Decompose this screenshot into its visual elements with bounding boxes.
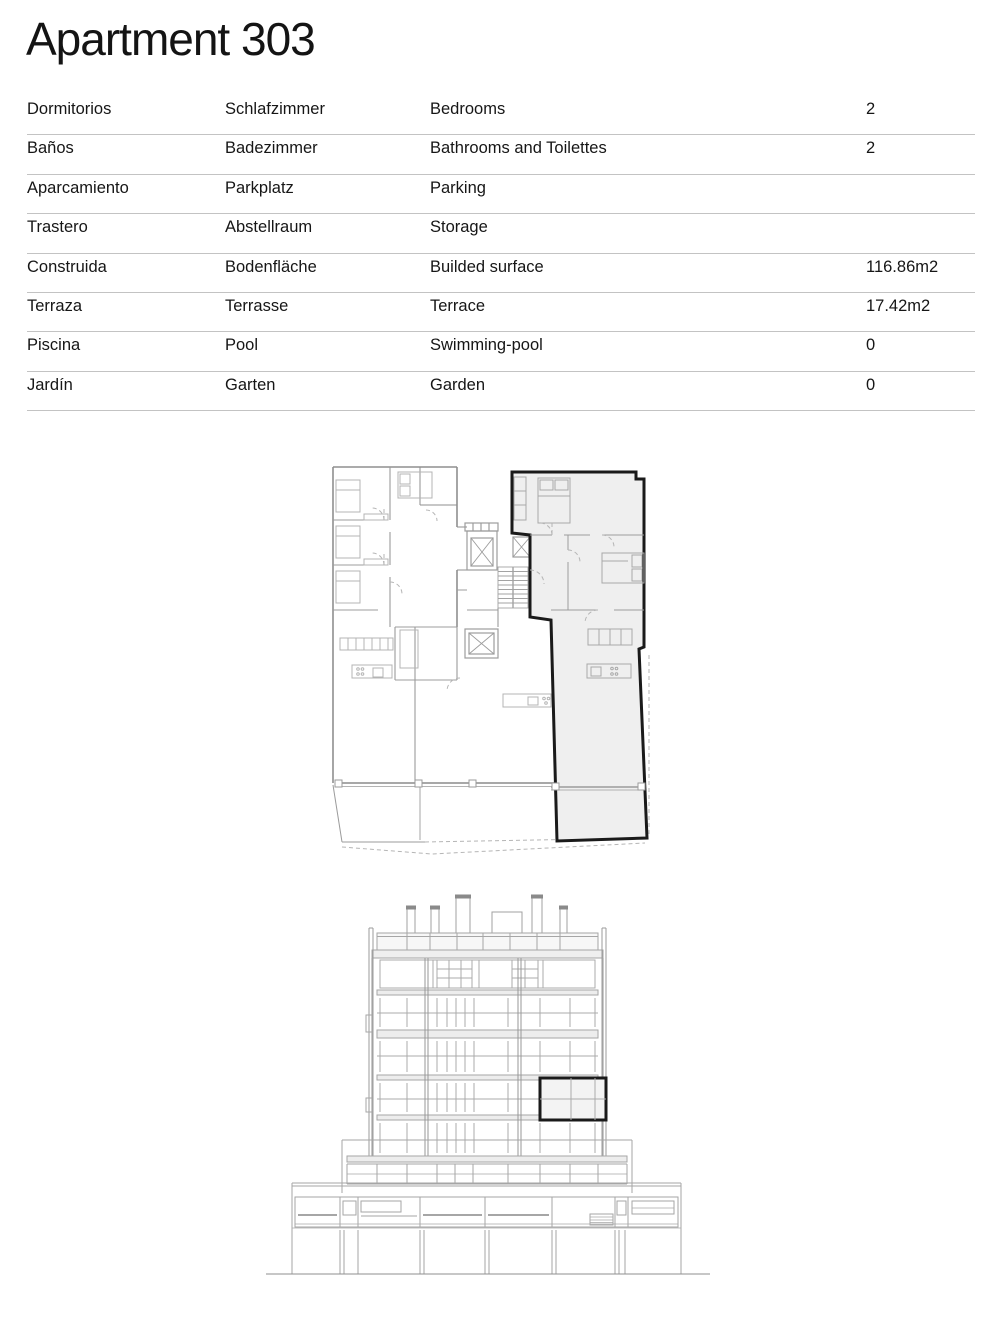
page-title: Apartment 303: [26, 12, 315, 66]
roof-chimneys: [406, 895, 568, 934]
roof-parapet: [372, 933, 603, 958]
highlighted-unit-303: [512, 472, 649, 841]
spec-de: Schlafzimmer: [225, 100, 430, 134]
spec-es: Terraza: [27, 297, 225, 331]
spec-value: [866, 218, 975, 252]
spec-de: Badezimmer: [225, 139, 430, 173]
lower-podium: [292, 1183, 681, 1274]
spec-row-garden: Jardín Garten Garden 0: [27, 372, 975, 411]
spec-en: Builded surface: [430, 258, 866, 292]
stairs: [498, 567, 528, 608]
spec-es: Construida: [27, 258, 225, 292]
spec-row-parking: Aparcamiento Parkplatz Parking: [27, 175, 975, 214]
spec-row-built-surface: Construida Bodenfläche Builded surface 1…: [27, 254, 975, 293]
spec-row-terrace: Terraza Terrasse Terrace 17.42m2: [27, 293, 975, 332]
neighbour-walls: [333, 467, 498, 783]
spec-de: Abstellraum: [225, 218, 430, 252]
spec-de: Pool: [225, 336, 430, 370]
spec-value: 0: [866, 336, 975, 370]
elevation-drawing: [265, 890, 745, 1295]
elevation-svg: [265, 890, 745, 1290]
spec-value: 2: [866, 100, 975, 134]
spec-es: Jardín: [27, 376, 225, 410]
spec-value: 0: [866, 376, 975, 410]
spec-en: Garden: [430, 376, 866, 410]
spec-row-storage: Trastero Abstellraum Storage: [27, 214, 975, 253]
floor-plan-svg: [300, 450, 700, 862]
spec-es: Aparcamiento: [27, 179, 225, 213]
spec-en: Storage: [430, 218, 866, 252]
spec-row-pool: Piscina Pool Swimming-pool 0: [27, 332, 975, 371]
spec-es: Dormitorios: [27, 100, 225, 134]
spec-en: Bedrooms: [430, 100, 866, 134]
neighbour-units: [333, 467, 467, 783]
spec-en: Bathrooms and Toilettes: [430, 139, 866, 173]
floor-plan-drawing: [300, 450, 700, 867]
spec-es: Piscina: [27, 336, 225, 370]
tower-floor-2-windows: [377, 998, 598, 1027]
spec-value: 17.42m2: [866, 297, 975, 331]
spec-de: Garten: [225, 376, 430, 410]
door-arcs: [372, 508, 460, 691]
spec-value: 2: [866, 139, 975, 173]
spec-value: 116.86m2: [866, 258, 975, 292]
spec-row-bedrooms: Dormitorios Schlafzimmer Bedrooms 2: [27, 96, 975, 135]
spec-row-bathrooms: Baños Badezimmer Bathrooms and Toilettes…: [27, 135, 975, 174]
spec-en: Swimming-pool: [430, 336, 866, 370]
spec-de: Terrasse: [225, 297, 430, 331]
tower-floor-1-windows: [380, 960, 595, 988]
spec-en: Terrace: [430, 297, 866, 331]
spec-de: Parkplatz: [225, 179, 430, 213]
spec-es: Baños: [27, 139, 225, 173]
elevation-highlight-box: [540, 1078, 606, 1120]
spec-table: Dormitorios Schlafzimmer Bedrooms 2 Baño…: [27, 96, 975, 411]
spec-en: Parking: [430, 179, 866, 213]
spec-de: Bodenfläche: [225, 258, 430, 292]
tower-floor-5-windows: [377, 1123, 598, 1153]
mid-podium: [342, 1140, 632, 1193]
spec-es: Trastero: [27, 218, 225, 252]
tower-floor-3-windows: [377, 1041, 598, 1072]
elevator-core: [465, 523, 530, 658]
spec-value: [866, 179, 975, 213]
